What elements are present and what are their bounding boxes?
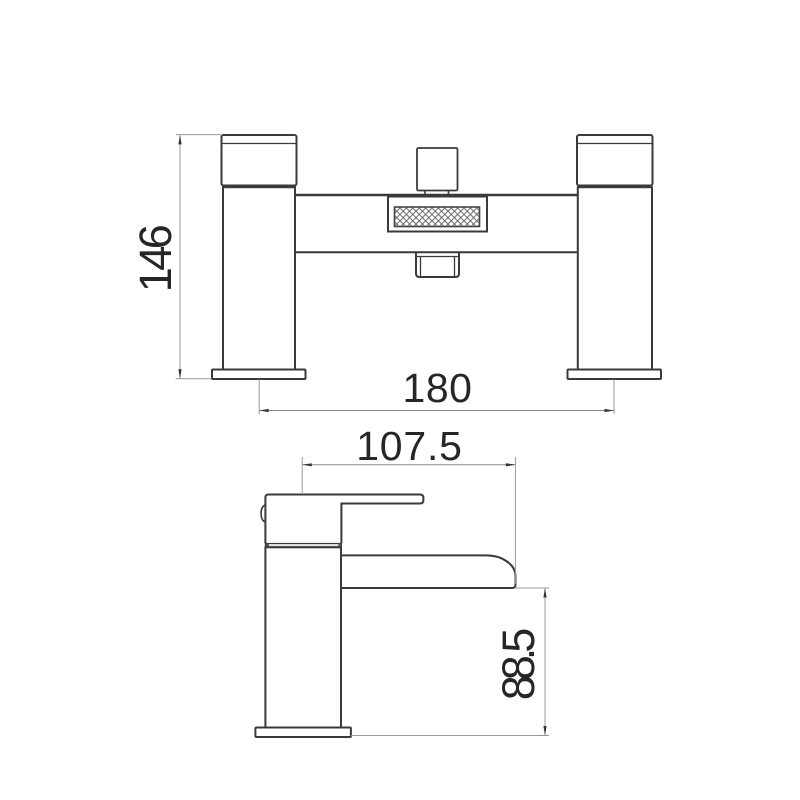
svg-text:146: 146 bbox=[130, 225, 181, 292]
svg-text:107.5: 107.5 bbox=[356, 423, 463, 469]
svg-text:180: 180 bbox=[403, 365, 473, 411]
svg-text:88.5: 88.5 bbox=[493, 629, 544, 701]
